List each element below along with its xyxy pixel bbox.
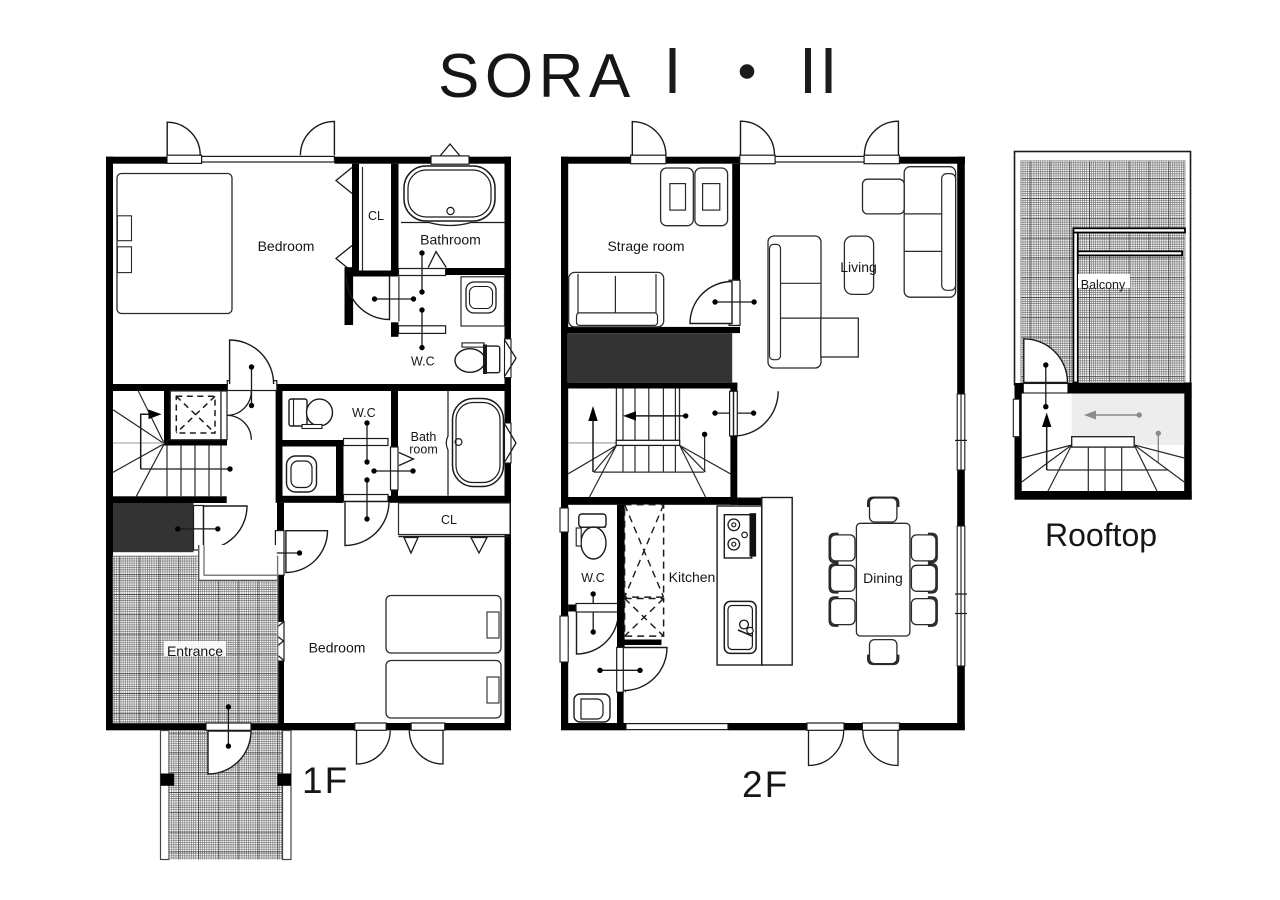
svg-text:room: room bbox=[409, 443, 437, 457]
svg-text:CL: CL bbox=[441, 513, 457, 527]
svg-text:W.C: W.C bbox=[581, 571, 605, 585]
svg-text:W.C: W.C bbox=[411, 355, 435, 369]
svg-text:Strage room: Strage room bbox=[607, 238, 684, 254]
svg-text:CL: CL bbox=[368, 209, 384, 223]
svg-text:Kitchen: Kitchen bbox=[669, 569, 716, 585]
svg-text:2F: 2F bbox=[742, 764, 789, 805]
svg-text:Rooftop: Rooftop bbox=[1045, 517, 1157, 553]
svg-text:Entrance: Entrance bbox=[167, 643, 223, 659]
svg-text:SORA: SORA bbox=[438, 42, 636, 111]
svg-text:Bathroom: Bathroom bbox=[420, 232, 481, 248]
svg-text:1F: 1F bbox=[302, 760, 349, 801]
svg-text:Bedroom: Bedroom bbox=[309, 640, 366, 656]
svg-text:Bedroom: Bedroom bbox=[258, 238, 315, 254]
svg-text:Living: Living bbox=[840, 259, 877, 275]
svg-text:Balcony: Balcony bbox=[1081, 278, 1126, 292]
svg-text:W.C: W.C bbox=[352, 406, 376, 420]
svg-text:Dining: Dining bbox=[863, 570, 903, 586]
